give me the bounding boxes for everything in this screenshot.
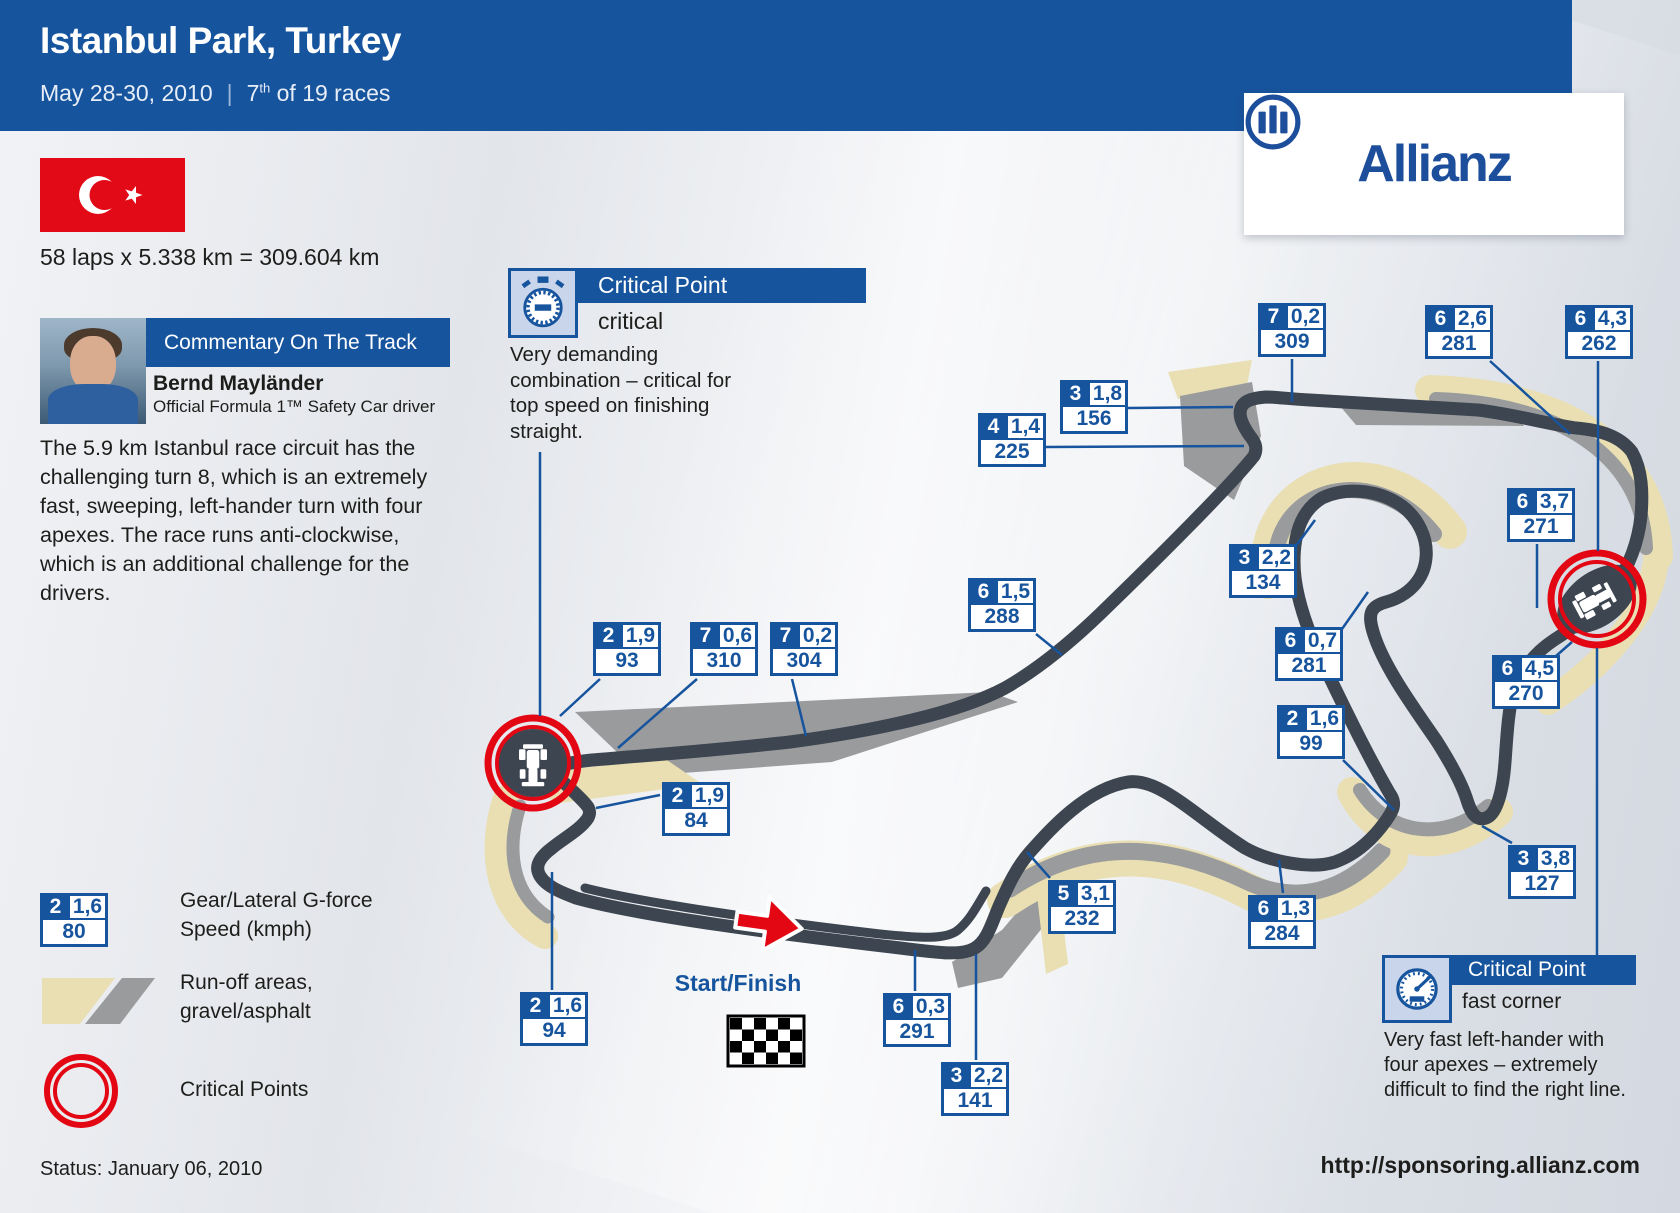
race-number-suffix: th (259, 80, 270, 95)
commentary-driver-role: Official Formula 1™ Safety Car driver (153, 397, 435, 417)
corner-gear: 6 (971, 581, 996, 603)
corner-speed: 134 (1232, 569, 1294, 595)
corner-gforce: 0,2 (798, 625, 835, 647)
critical-point-1-title-bar: Critical Point (578, 268, 866, 303)
critical-point-2-text: Very fast left-hander with four apexes –… (1384, 1028, 1640, 1103)
corner-label: 62,6281 (1425, 305, 1493, 359)
corner-gforce: 1,9 (690, 785, 727, 807)
legend-runoff-line1: Run-off areas, (180, 968, 313, 997)
event-date: May 28-30, 2010 (40, 80, 213, 106)
legend-runoff-text: Run-off areas, gravel/asphalt (180, 968, 313, 1026)
critical-point-2-subtitle: fast corner (1462, 990, 1561, 1014)
corner-speed: 99 (1280, 730, 1342, 756)
corner-gear: 7 (693, 625, 718, 647)
corner-gear: 6 (1568, 308, 1593, 330)
corner-gforce: 4,3 (1593, 308, 1630, 330)
legend-sample-speed: 80 (43, 918, 105, 944)
corner-speed: 225 (981, 438, 1043, 464)
corner-speed: 84 (665, 807, 727, 833)
legend-sample-label: 2 1,6 80 (40, 893, 108, 947)
corner-gforce: 0,7 (1303, 630, 1340, 652)
critical-point-marker-1 (488, 718, 578, 808)
infographic-page: { "header": { "title": "Istanbul Park, T… (0, 0, 1680, 1213)
photo-shirt (48, 384, 138, 424)
corner-gear: 7 (1261, 306, 1286, 328)
corner-gear: 2 (523, 995, 548, 1017)
page-subtitle: May 28-30, 2010|7th of 19 races (40, 80, 390, 107)
corner-speed: 281 (1428, 330, 1490, 356)
corner-gforce: 3,1 (1076, 883, 1113, 905)
corner-speed: 93 (596, 647, 658, 673)
corner-gear: 5 (1051, 883, 1076, 905)
separator: | (227, 80, 233, 106)
corner-label: 32,2134 (1229, 544, 1297, 598)
corner-label: 21,694 (520, 992, 588, 1046)
corner-label: 33,8127 (1508, 845, 1576, 899)
corner-speed: 262 (1568, 330, 1630, 356)
legend-gear-text: Gear/Lateral G-force Speed (kmph) (180, 886, 373, 944)
corner-label: 70,2309 (1258, 303, 1326, 357)
critical-point-2-title-bar: Critical Point (1452, 955, 1636, 985)
corner-label: 60,3291 (883, 993, 951, 1047)
corner-gforce: 3,7 (1535, 491, 1572, 513)
legend-runoff-line2: gravel/asphalt (180, 997, 313, 1026)
legend-sample-gforce: 1,6 (68, 896, 105, 918)
corner-gear: 3 (944, 1065, 969, 1087)
corner-speed: 288 (971, 603, 1033, 629)
corner-gear: 3 (1232, 547, 1257, 569)
allianz-logo-box: Allianz (1244, 93, 1624, 235)
commentary-title-bar: Commentary On The Track (146, 318, 450, 367)
leader-line (596, 795, 660, 808)
corner-label: 41,4225 (978, 413, 1046, 467)
corner-speed: 141 (944, 1087, 1006, 1113)
corner-label: 53,1232 (1048, 880, 1116, 934)
corner-gforce: 2,2 (1257, 547, 1294, 569)
corner-label: 32,2141 (941, 1062, 1009, 1116)
sponsoring-url[interactable]: http://sponsoring.allianz.com (1321, 1152, 1640, 1179)
corner-speed: 310 (693, 647, 755, 673)
legend-sample-gear: 2 (43, 896, 68, 918)
corner-gforce: 1,9 (621, 625, 658, 647)
corner-gforce: 3,8 (1536, 848, 1573, 870)
corner-label: 21,993 (593, 622, 661, 676)
corner-gear: 3 (1063, 383, 1088, 405)
corner-gforce: 2,2 (969, 1065, 1006, 1087)
corner-gforce: 0,6 (718, 625, 755, 647)
allianz-wordmark: Allianz (1357, 134, 1511, 194)
corner-label: 70,6310 (690, 622, 758, 676)
corner-speed: 156 (1063, 405, 1125, 431)
driver-photo (40, 318, 146, 424)
status-date: Status: January 06, 2010 (40, 1158, 262, 1181)
speedometer-icon (1382, 955, 1452, 1023)
page-title: Istanbul Park, Turkey (40, 20, 401, 62)
corner-label: 64,3262 (1565, 305, 1633, 359)
corner-gear: 7 (773, 625, 798, 647)
corner-gforce: 2,6 (1453, 308, 1490, 330)
corner-label: 61,3284 (1248, 895, 1316, 949)
corner-label: 60,7281 (1275, 627, 1343, 681)
corner-gforce: 0,3 (911, 996, 948, 1018)
corner-speed: 304 (773, 647, 835, 673)
race-count: of 19 races (277, 80, 391, 106)
corner-gforce: 1,3 (1276, 898, 1313, 920)
legend-critical-text: Critical Points (180, 1078, 308, 1102)
corner-gforce: 4,5 (1520, 658, 1557, 680)
corner-speed: 281 (1278, 652, 1340, 678)
corner-label: 61,5288 (968, 578, 1036, 632)
corner-gforce: 1,6 (1305, 708, 1342, 730)
leader-line (1128, 407, 1233, 408)
corner-speed: 94 (523, 1017, 585, 1043)
corner-label: 63,7271 (1507, 488, 1575, 542)
corner-gforce: 1,5 (996, 581, 1033, 603)
corner-gear: 2 (1280, 708, 1305, 730)
commentary-text: The 5.9 km Istanbul race circuit has the… (40, 434, 454, 608)
corner-gear: 6 (1510, 491, 1535, 513)
corner-gear: 6 (886, 996, 911, 1018)
corner-speed: 270 (1495, 680, 1557, 706)
corner-speed: 127 (1511, 870, 1573, 896)
race-direction-arrow (733, 893, 806, 956)
corner-gear: 6 (1251, 898, 1276, 920)
legend-gear-line2: Speed (kmph) (180, 915, 373, 944)
critical-point-1-text: Very demanding combination – critical fo… (510, 342, 750, 444)
corner-speed: 232 (1051, 905, 1113, 931)
corner-gforce: 1,8 (1088, 383, 1125, 405)
commentary-driver-name: Bernd Mayländer (153, 372, 323, 396)
race-number: 7 (247, 80, 260, 106)
corner-label: 21,699 (1277, 705, 1345, 759)
corner-gear: 2 (665, 785, 690, 807)
corner-label: 70,2304 (770, 622, 838, 676)
corner-gear: 3 (1511, 848, 1536, 870)
corner-label: 31,8156 (1060, 380, 1128, 434)
allianz-emblem-icon (1244, 93, 1302, 151)
legend-runoff-swatch (42, 978, 155, 1024)
legend-gear-line1: Gear/Lateral G-force (180, 886, 373, 915)
critical-point-1-subtitle: critical (598, 308, 663, 335)
corner-gear: 2 (596, 625, 621, 647)
leader-line (1342, 592, 1368, 629)
legend-critical-circle (47, 1057, 115, 1125)
leader-line (1046, 446, 1244, 447)
corner-speed: 291 (886, 1018, 948, 1044)
corner-speed: 284 (1251, 920, 1313, 946)
corner-label: 21,984 (662, 782, 730, 836)
corner-label: 64,5270 (1492, 655, 1560, 709)
corner-gear: 6 (1428, 308, 1453, 330)
corner-speed: 271 (1510, 513, 1572, 539)
corner-gforce: 0,2 (1286, 306, 1323, 328)
corner-speed: 309 (1261, 328, 1323, 354)
corner-gforce: 1,4 (1006, 416, 1043, 438)
corner-gforce: 1,6 (548, 995, 585, 1017)
start-finish-label: Start/Finish (663, 970, 813, 997)
start-finish-flag-icon (728, 1016, 804, 1066)
stopwatch-icon (508, 268, 578, 338)
corner-gear: 6 (1495, 658, 1520, 680)
corner-gear: 4 (981, 416, 1006, 438)
corner-gear: 6 (1278, 630, 1303, 652)
turkey-flag (40, 158, 185, 232)
race-distance: 58 laps x 5.338 km = 309.604 km (40, 244, 379, 271)
leader-line (560, 679, 600, 716)
